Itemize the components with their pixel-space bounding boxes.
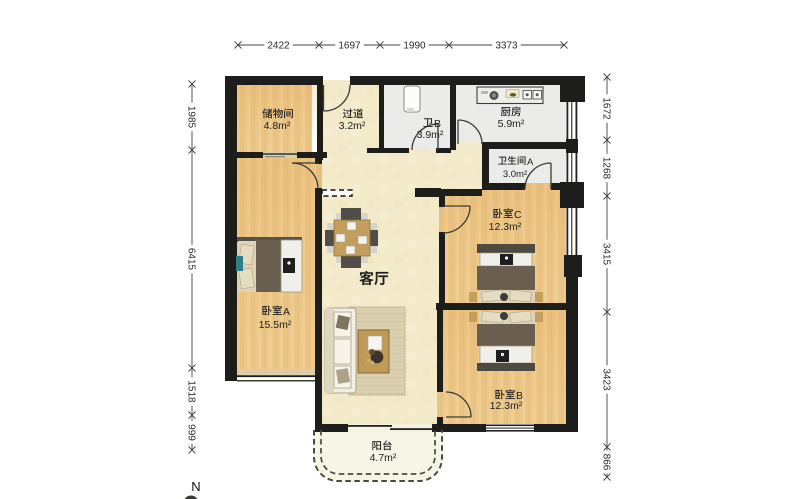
svg-text:C: C bbox=[514, 209, 522, 221]
svg-text:12.3m²: 12.3m² bbox=[489, 221, 522, 233]
svg-text:1518: 1518 bbox=[186, 380, 197, 403]
svg-text:5.9m²: 5.9m² bbox=[498, 118, 525, 130]
svg-text:12.3m²: 12.3m² bbox=[490, 400, 523, 412]
svg-text:3415: 3415 bbox=[601, 243, 612, 266]
svg-text:999: 999 bbox=[186, 424, 197, 441]
svg-text:A: A bbox=[527, 157, 534, 168]
svg-text:1990: 1990 bbox=[403, 41, 426, 52]
svg-text:1985: 1985 bbox=[186, 106, 197, 129]
svg-text:2422: 2422 bbox=[267, 41, 290, 52]
svg-text:6415: 6415 bbox=[186, 248, 197, 271]
svg-text:1268: 1268 bbox=[601, 157, 612, 180]
svg-text:3.9m²: 3.9m² bbox=[417, 129, 444, 141]
svg-text:4.7m²: 4.7m² bbox=[370, 452, 397, 464]
svg-text:3373: 3373 bbox=[495, 41, 518, 52]
svg-text:866: 866 bbox=[601, 454, 612, 471]
svg-text:N: N bbox=[191, 479, 200, 494]
svg-text:A: A bbox=[283, 306, 290, 318]
svg-text:3.0m²: 3.0m² bbox=[503, 169, 527, 180]
svg-text:1672: 1672 bbox=[601, 97, 612, 120]
svg-text:3.2m²: 3.2m² bbox=[339, 120, 366, 132]
svg-text:4.8m²: 4.8m² bbox=[264, 120, 291, 132]
svg-text:3423: 3423 bbox=[601, 368, 612, 391]
svg-text:1697: 1697 bbox=[338, 41, 361, 52]
svg-text:15.5m²: 15.5m² bbox=[259, 319, 292, 331]
